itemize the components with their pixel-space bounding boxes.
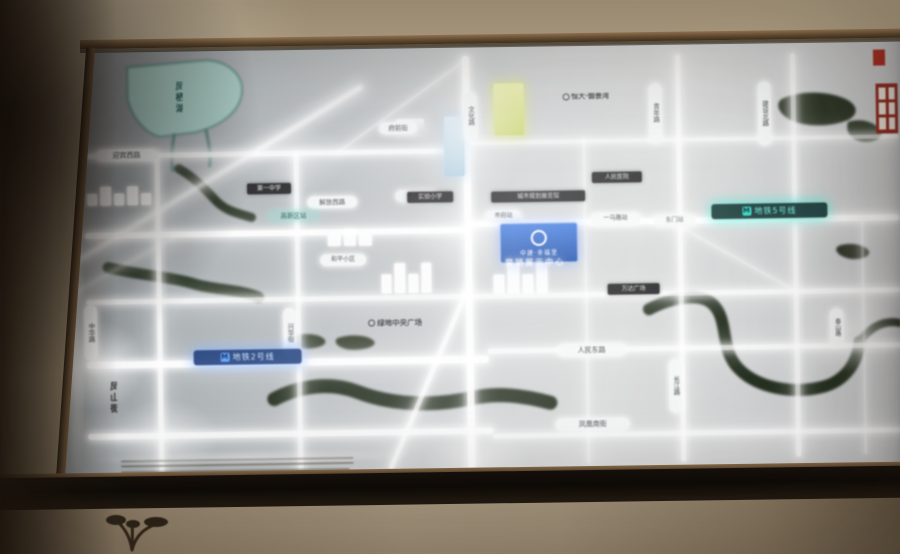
road-label-jiefang-west: 解放西路 <box>307 196 357 209</box>
label-text: 凤山街 <box>108 381 118 414</box>
label-text: 泰山路 <box>834 318 840 336</box>
road-label-fengshan: 凤山街 <box>108 374 118 422</box>
map-road-v4 <box>582 138 590 463</box>
red-sign-block <box>888 102 895 114</box>
label-text: 迎宾西路 <box>112 152 140 159</box>
red-sign-partial <box>875 83 898 133</box>
label-text: 一马路站 <box>603 216 627 222</box>
metro-logo-icon: M <box>221 353 230 362</box>
red-sign-block <box>888 87 895 99</box>
building-icon <box>87 194 98 206</box>
road-label-wenhua: 文化路 <box>464 92 478 140</box>
poi-logo-icon <box>562 93 569 100</box>
road-label-qingnian: 青年路 <box>648 83 662 143</box>
label-text: 凤栖湖 <box>173 81 183 114</box>
project-logo-icon <box>531 229 547 245</box>
metro-line5-label: M地铁5号线 <box>711 202 827 219</box>
poi-label-planning-hall: 城市规划展览馆 <box>491 190 585 202</box>
label-text: 恒大·御景湾 <box>571 93 609 101</box>
building-icon <box>394 263 405 294</box>
label-text: 兴华街 <box>286 323 293 343</box>
map-road-h5-east <box>493 427 900 438</box>
red-sign-block <box>879 102 886 114</box>
bloom-right <box>793 281 900 375</box>
label-text: 地铁2号线 <box>233 353 275 362</box>
label-text: 长江路 <box>672 376 679 396</box>
label-text: 建设北路 <box>761 100 768 126</box>
label-text: 高新区站 <box>280 212 306 219</box>
road-label-fuqian: 府前街 <box>379 122 417 135</box>
label-text: 中华路 <box>87 323 94 343</box>
building-cluster-northwest <box>87 185 151 206</box>
station-label-gaoxin: 高新区站 <box>267 209 319 222</box>
poi-label-wanda: 万达广场 <box>608 283 660 295</box>
poi-label-no1-school: 第一中学 <box>247 183 291 195</box>
metro-line2-label: M地铁2号线 <box>194 349 302 366</box>
label-text: 实验小学 <box>418 194 442 200</box>
building-icon <box>328 235 341 246</box>
label-text: 万达广场 <box>622 286 646 292</box>
road-label-fenghuang-south: 凤凰南街 <box>556 418 630 431</box>
poi-label-yujingwan: 恒大·御景湾 <box>544 93 628 101</box>
poi-logo-icon <box>368 320 375 327</box>
label-text: 府前街 <box>388 125 408 132</box>
red-sign-block <box>888 117 895 129</box>
map-road-v6 <box>790 53 801 457</box>
station-label-dongmen: 东门站 <box>653 214 695 227</box>
decor-object <box>86 502 196 552</box>
label-text: 城市规划展览馆 <box>517 193 559 200</box>
label-text: 文化路 <box>467 106 474 126</box>
poi-label-lvdi-plaza: 绿地中央广场 <box>349 318 441 327</box>
lake-label: 凤栖湖 <box>173 74 183 120</box>
map-road-h1-east <box>468 134 898 145</box>
project-subtitle: 营销展示中心 <box>505 256 625 269</box>
label-text: 和平小区 <box>331 257 355 263</box>
building-icon <box>359 235 372 246</box>
road-label-jianshe-north: 建设北路 <box>757 81 771 145</box>
building-icon <box>343 229 356 246</box>
project-title: 中建·幸福里 <box>520 247 558 257</box>
red-sign-block <box>878 87 885 99</box>
road-label-renmin-east: 人民东路 <box>557 344 625 357</box>
building-icon <box>127 186 138 205</box>
road-label-yingbin-west: 迎宾西路 <box>95 149 157 162</box>
red-marker-partial <box>873 49 885 65</box>
label-text: 市府站 <box>494 213 512 219</box>
building-icon <box>141 193 152 205</box>
poi-label-heping: 和平小区 <box>320 254 366 267</box>
building-icon <box>381 274 392 293</box>
photo-of-illuminated-map-display: 迎宾西路府前街解放西路新华街和平小区市府站一马路站东门站人民东路凤凰南街恒大·御… <box>0 0 900 554</box>
label-text: 地铁5号线 <box>754 206 796 215</box>
building-icon <box>100 187 111 206</box>
map-road-diag-east <box>678 225 797 293</box>
label-text: 青年路 <box>652 103 659 123</box>
label-text: 第一中学 <box>257 185 281 191</box>
station-label-yimalu: 一马路站 <box>590 212 640 225</box>
label-text: 绿地中央广场 <box>377 319 422 327</box>
label-text: 东门站 <box>666 218 684 224</box>
poi-label-exp-school: 实验小学 <box>407 191 453 203</box>
label-text: 凤凰南街 <box>579 420 607 427</box>
road-label-zhonghua: 中华路 <box>84 305 98 361</box>
building-icon <box>114 193 125 205</box>
red-sign-block <box>879 117 886 129</box>
metro-logo-icon: M <box>742 207 751 216</box>
station-label-shifu: 市府站 <box>485 210 521 223</box>
road-label-taishan: 泰山路 <box>830 308 844 346</box>
building-cluster-lakeside <box>328 228 372 247</box>
label-text: 人民东路 <box>578 346 606 353</box>
road-label-changjiang: 长江路 <box>669 359 683 413</box>
label-text: 人民医院 <box>605 174 629 180</box>
poi-label-hospital: 人民医院 <box>592 171 642 183</box>
label-text: 解放西路 <box>319 199 345 206</box>
